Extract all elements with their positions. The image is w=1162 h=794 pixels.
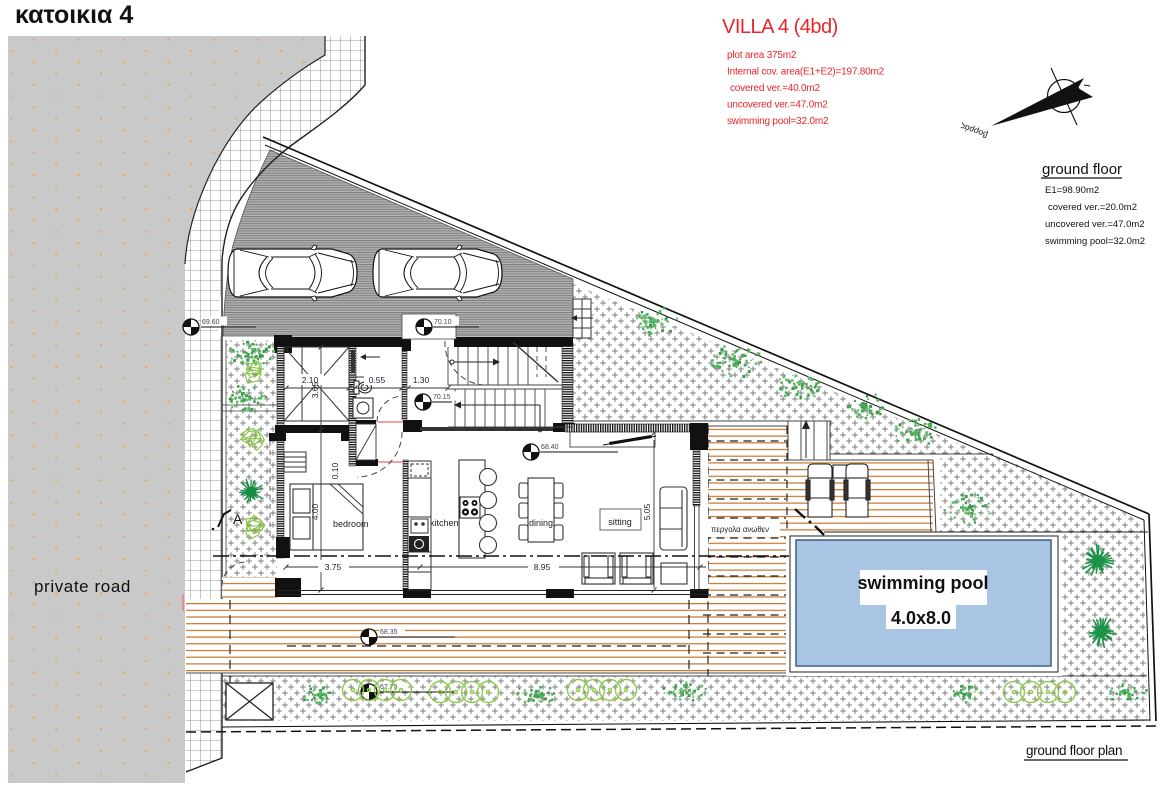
svg-text:swimming pool=32.0m2: swimming pool=32.0m2 [1045, 236, 1145, 247]
svg-text:περγολα ανωθεν: περγολα ανωθεν [711, 525, 769, 534]
svg-text:covered ver.=20.0m2: covered ver.=20.0m2 [1048, 202, 1137, 213]
svg-text:Internal cov. area(E1+E2)=197.: Internal cov. area(E1+E2)=197.80m2 [727, 67, 885, 78]
svg-text:uncovered ver.=47.0m2: uncovered ver.=47.0m2 [727, 100, 828, 111]
svg-text:69.60: 69.60 [202, 319, 220, 326]
svg-text:68.35: 68.35 [380, 629, 398, 636]
svg-text:E1=98.90m2: E1=98.90m2 [1045, 185, 1099, 196]
svg-text:3.65: 3.65 [310, 381, 320, 398]
svg-text:0.55: 0.55 [369, 375, 386, 385]
svg-text:70.15: 70.15 [433, 394, 451, 401]
svg-text:swimming pool: swimming pool [857, 573, 988, 593]
svg-text:5.05: 5.05 [642, 503, 652, 520]
svg-text:covered ver.=40.0m2: covered ver.=40.0m2 [730, 83, 821, 94]
svg-text:A: A [233, 511, 243, 527]
svg-text:private road: private road [34, 577, 131, 596]
svg-text:plot area 375m2: plot area 375m2 [727, 50, 797, 61]
svg-text:κατοικια 4: κατοικια 4 [15, 1, 133, 29]
svg-text:0.10: 0.10 [330, 462, 340, 479]
svg-text:sitting: sitting [608, 517, 632, 527]
svg-text:1.30: 1.30 [413, 375, 430, 385]
svg-text:8.95: 8.95 [534, 562, 551, 572]
svg-text:68.40: 68.40 [541, 444, 559, 451]
svg-text:4.0x8.0: 4.0x8.0 [891, 608, 951, 628]
svg-text:4.00: 4.00 [310, 503, 320, 520]
svg-text:uncovered ver.=47.0m2: uncovered ver.=47.0m2 [1045, 219, 1145, 230]
svg-text:swimming pool=32.0m2: swimming pool=32.0m2 [727, 116, 829, 127]
svg-text:VILLA 4 (4bd): VILLA 4 (4bd) [722, 16, 838, 38]
svg-text:3.75: 3.75 [325, 562, 342, 572]
svg-text:dining: dining [529, 518, 553, 528]
svg-text:70.10: 70.10 [434, 319, 452, 326]
svg-text:ground floor plan: ground floor plan [1026, 743, 1122, 758]
svg-text:ground floor: ground floor [1042, 161, 1122, 178]
svg-text:bedroom: bedroom [333, 519, 369, 529]
svg-text:kitchen: kitchen [430, 518, 459, 528]
